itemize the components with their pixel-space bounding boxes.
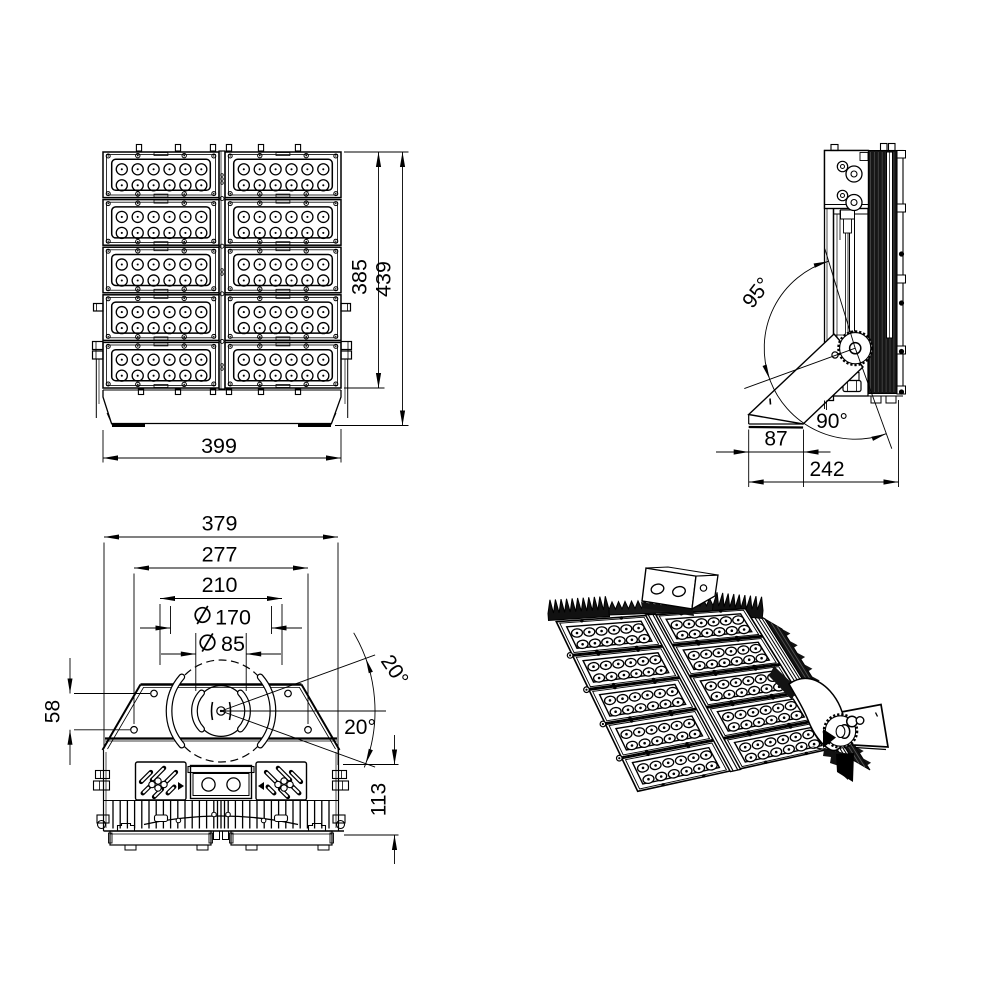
- svg-text:379: 379: [202, 512, 238, 536]
- svg-text:58: 58: [42, 700, 65, 723]
- svg-text:85: 85: [221, 632, 245, 656]
- svg-text:170: 170: [215, 606, 251, 630]
- svg-text:210: 210: [202, 573, 238, 597]
- svg-text:242: 242: [809, 458, 844, 481]
- svg-text:113: 113: [368, 783, 391, 816]
- svg-text:399: 399: [201, 434, 237, 458]
- svg-text:277: 277: [202, 543, 238, 567]
- svg-text:90°: 90°: [816, 410, 848, 433]
- svg-text:439: 439: [372, 261, 396, 297]
- svg-text:87: 87: [764, 428, 787, 451]
- svg-text:385: 385: [348, 259, 372, 295]
- svg-text:20°: 20°: [344, 716, 376, 739]
